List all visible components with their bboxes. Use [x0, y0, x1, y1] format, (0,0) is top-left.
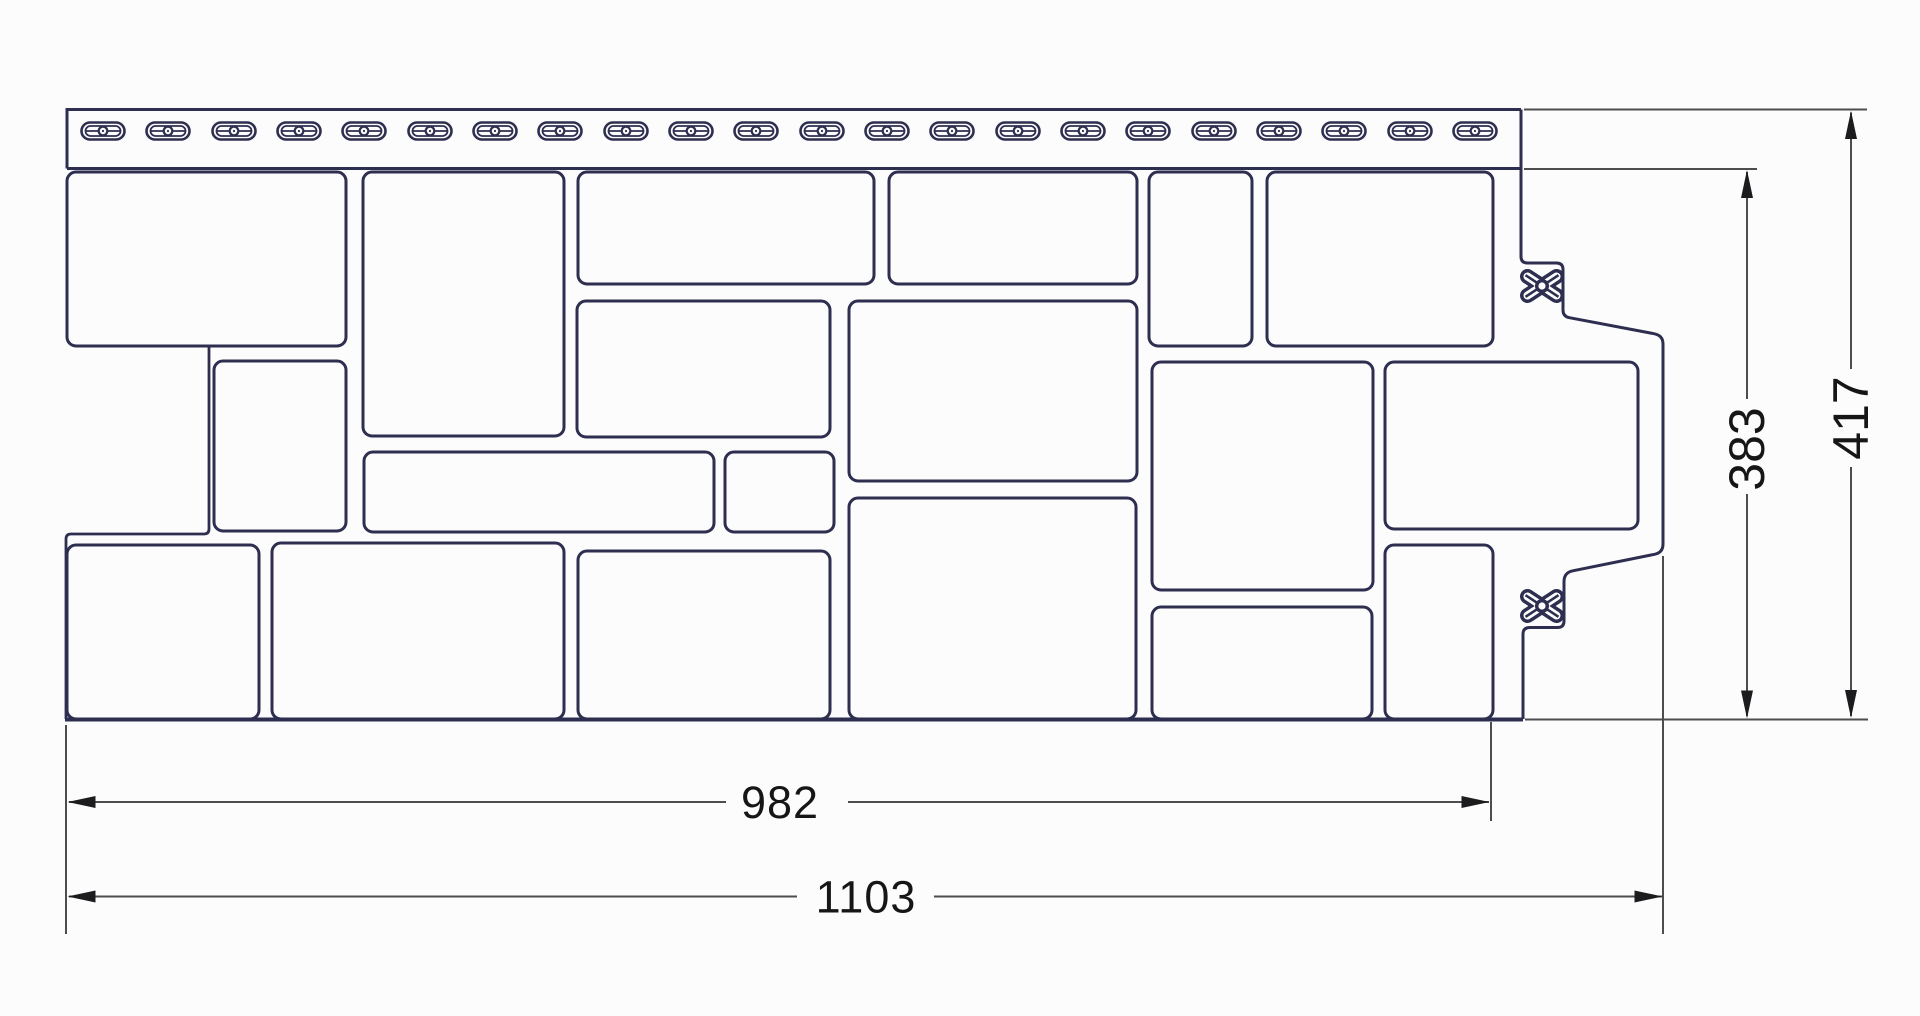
svg-text:383: 383	[1719, 407, 1775, 490]
svg-text:1103: 1103	[816, 872, 917, 923]
svg-text:417: 417	[1823, 376, 1879, 459]
svg-text:982: 982	[741, 777, 819, 828]
